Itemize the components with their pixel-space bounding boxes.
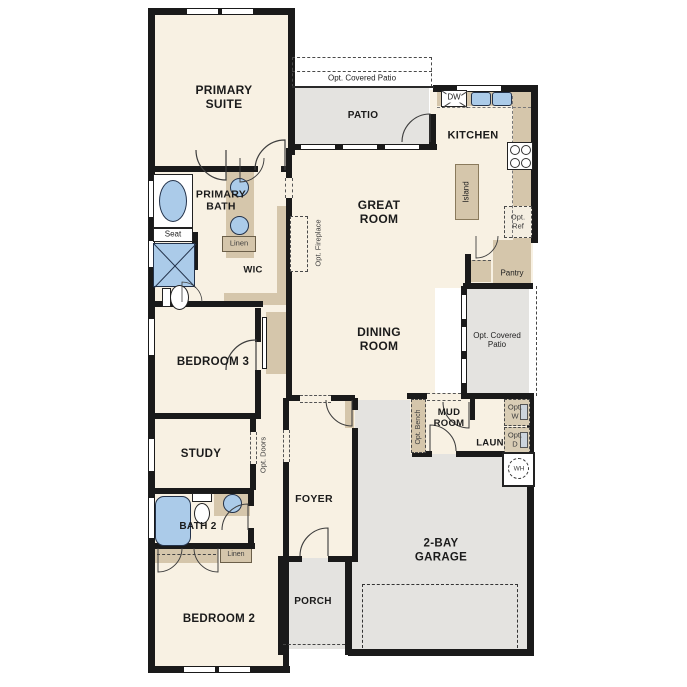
- wall: [250, 464, 256, 490]
- cased-opening: [427, 393, 461, 401]
- wall: [352, 428, 358, 562]
- label-opt-covered-patio-top: Opt. Covered Patio: [328, 75, 396, 84]
- bath2-toilet-tank: [192, 493, 212, 502]
- door-arc: [240, 158, 264, 182]
- door-arc: [182, 282, 202, 302]
- label-opt-washer: Opt. W: [505, 403, 525, 420]
- window: [183, 666, 216, 673]
- room-label-bedroom-2: BEDROOM 2: [183, 613, 255, 627]
- wall: [255, 308, 261, 342]
- door-arc: [476, 236, 498, 258]
- room-label-garage: 2-BAY GARAGE: [401, 537, 481, 564]
- room-label-study: STUDY: [181, 448, 221, 462]
- room-label-great-room: GREAT ROOM: [344, 198, 414, 226]
- window: [221, 8, 254, 15]
- door-arc: [158, 548, 182, 572]
- wall: [248, 528, 254, 546]
- window: [218, 666, 251, 673]
- wall: [283, 462, 289, 558]
- room-label-dining-room: DINING ROOM: [344, 325, 414, 353]
- room-label-bedroom-3: BEDROOM 3: [177, 356, 249, 370]
- bedroom3-closet-doors: [262, 317, 267, 369]
- window: [384, 144, 420, 150]
- label-dishwasher: DW: [446, 94, 461, 103]
- room-label-foyer: FOYER: [295, 493, 333, 505]
- garage-door-outline: [362, 584, 518, 648]
- wall: [286, 395, 300, 401]
- covered-patio-right-dashed-edge: [536, 286, 537, 396]
- great-dining-floor: [288, 148, 435, 400]
- window: [342, 144, 378, 150]
- wall: [463, 283, 533, 289]
- door-arc: [194, 548, 218, 572]
- room-label-bath-2: BATH 2: [179, 521, 216, 533]
- room-label-porch: PORCH: [294, 596, 332, 608]
- opt-covered-patio-top-line: [292, 71, 432, 72]
- primary-shower: [153, 243, 195, 287]
- label-island: Island: [463, 181, 472, 202]
- patio-roof-line: [292, 86, 434, 88]
- burner-icon: [521, 145, 531, 155]
- label-pantry: Pantry: [500, 270, 523, 279]
- wall: [151, 413, 261, 419]
- porch-edge-line: [283, 644, 345, 645]
- door-arc: [196, 150, 226, 180]
- bedroom3-closet-shelf: [266, 312, 286, 374]
- primary-toilet-tank: [162, 288, 171, 307]
- window: [186, 8, 219, 15]
- room-label-kitchen: KITCHEN: [448, 130, 499, 143]
- door-arc: [402, 114, 430, 142]
- label-opt-dryer: Opt. D: [505, 431, 525, 448]
- door-arc: [326, 400, 352, 426]
- window: [461, 326, 467, 352]
- room-label-laundry: LAUN: [476, 437, 504, 448]
- cased-opening: [285, 178, 293, 198]
- window: [461, 358, 467, 384]
- label-opt-doors: Opt. Doors: [260, 437, 269, 473]
- room-label-wic: WIC: [243, 264, 262, 275]
- wall: [283, 560, 289, 672]
- room-label-patio: PATIO: [348, 110, 379, 122]
- label-opt-bench: Opt. Bench: [415, 409, 423, 444]
- label-opt-fireplace: Opt. Fireplace: [315, 219, 324, 266]
- opt-doors-opening-study: [250, 432, 257, 464]
- burner-icon: [510, 158, 520, 168]
- room-label-mud-room: MUD ROOM: [425, 407, 473, 429]
- wall: [348, 649, 534, 656]
- room-label-primary-bath: PRIMARY BATH: [188, 189, 254, 214]
- label-water-heater: WH: [514, 465, 525, 472]
- primary-sink: [230, 216, 249, 235]
- room-label-primary-suite: PRIMARY SUITE: [184, 83, 264, 111]
- wall: [345, 556, 352, 655]
- label-linen-hall: Linen: [227, 551, 244, 559]
- floor-plan: PRIMARY SUITE PRIMARY BATH WIC PATIO KIT…: [0, 0, 687, 687]
- kitchen-sink-basin: [492, 92, 512, 106]
- wall: [255, 370, 261, 416]
- window: [148, 318, 155, 356]
- label-opt-covered-patio-right: Opt. Covered Patio: [471, 332, 523, 350]
- wall: [328, 556, 357, 562]
- window: [148, 497, 155, 539]
- kitchen-sink-basin: [471, 92, 491, 106]
- door-arc: [300, 528, 328, 556]
- primary-tub-basin: [159, 180, 187, 222]
- burner-icon: [510, 145, 520, 155]
- wall: [286, 148, 292, 178]
- opt-doors-opening-foyer: [283, 430, 290, 462]
- wall: [283, 398, 289, 430]
- label-opt-ref: Opt. Ref: [507, 213, 529, 230]
- door-arc: [222, 504, 248, 530]
- window: [300, 144, 336, 150]
- label-seat: Seat: [165, 231, 181, 240]
- window: [148, 438, 155, 472]
- window: [461, 294, 467, 320]
- wall: [248, 490, 254, 506]
- burner-icon: [521, 158, 531, 168]
- label-linen-primary: Linen: [230, 240, 248, 249]
- opt-fireplace-outline: [290, 216, 308, 272]
- wall: [250, 418, 256, 432]
